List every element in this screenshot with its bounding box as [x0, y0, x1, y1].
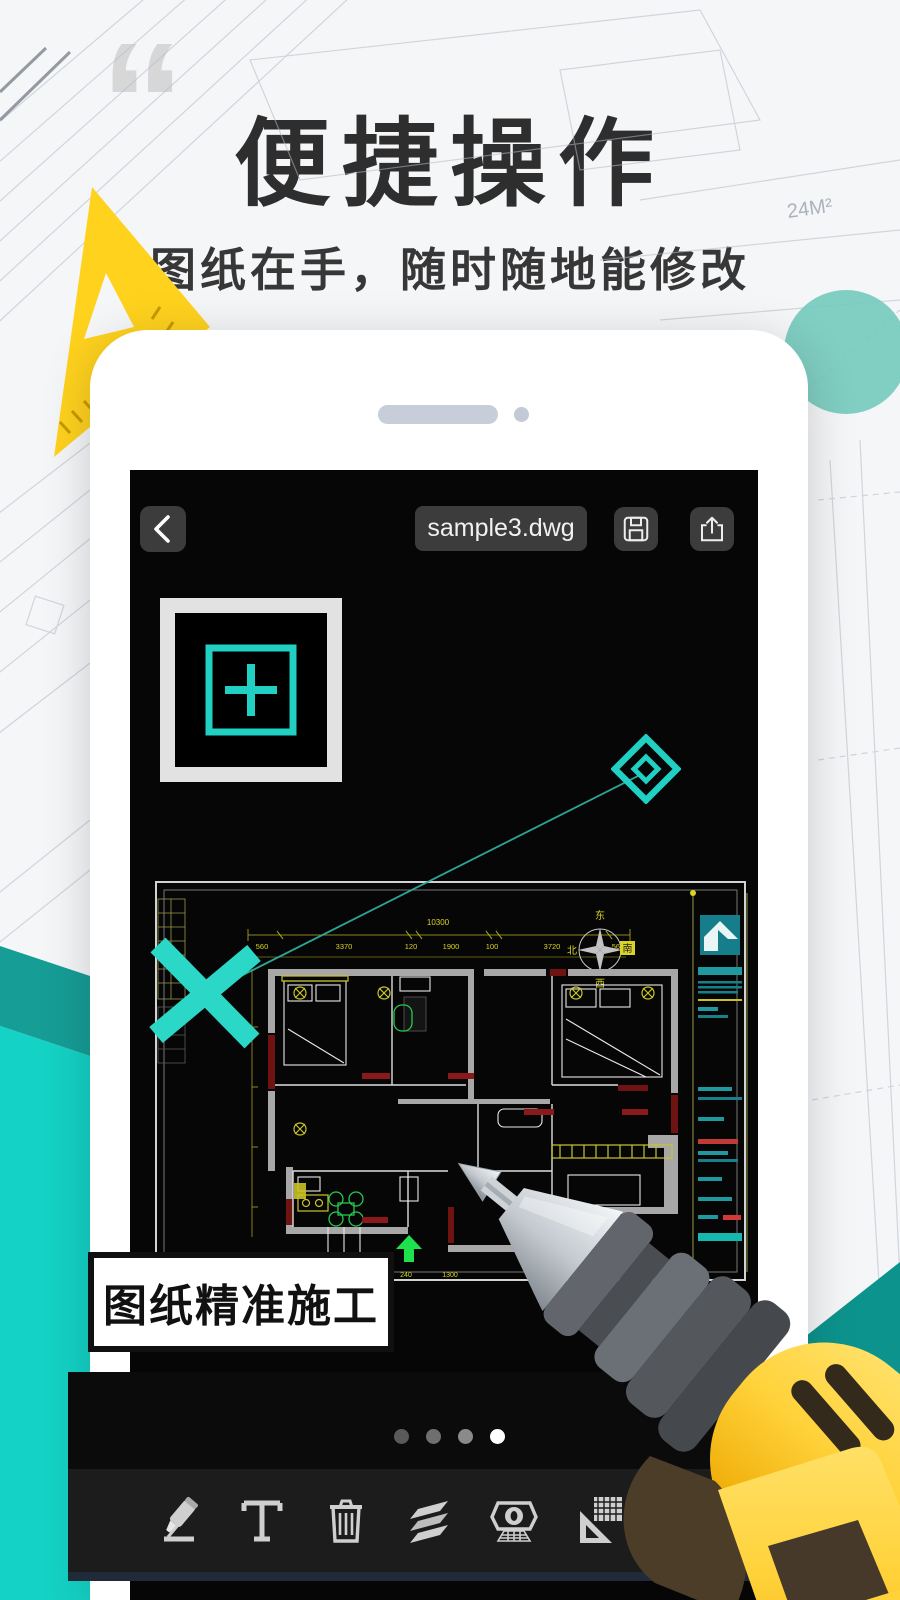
delete-tool[interactable] [320, 1495, 372, 1547]
svg-text:北: 北 [567, 945, 577, 957]
target-diamond-icon [611, 734, 681, 804]
add-entity-button[interactable] [160, 598, 342, 782]
trash-icon [320, 1495, 372, 1547]
cross-cursor-icon [140, 925, 270, 1055]
svg-text:120: 120 [405, 942, 418, 951]
plus-square-icon [203, 642, 299, 738]
svg-text:东: 东 [595, 909, 605, 922]
text-tool-icon [236, 1495, 288, 1547]
filename-chip: sample3.dwg [415, 506, 587, 551]
share-button[interactable] [690, 507, 734, 551]
compass-rose: 东 南 北 西 [567, 909, 635, 990]
promo-page: 24M² “ 便捷操作 图纸在手，随时随地能修改 [0, 0, 900, 1600]
svg-text:3370: 3370 [336, 942, 353, 951]
filename-label: sample3.dwg [427, 514, 574, 543]
phone-camera [514, 407, 529, 422]
save-button[interactable] [614, 507, 658, 551]
caption-banner-label: 图纸精准施工 [103, 1270, 379, 1334]
floppy-disk-icon [621, 514, 651, 544]
drill-image [400, 1096, 900, 1600]
share-icon [697, 514, 727, 544]
svg-text:100: 100 [486, 942, 499, 951]
marker-pen-icon [152, 1495, 204, 1547]
chevron-left-icon [140, 506, 186, 552]
svg-text:南: 南 [623, 942, 633, 955]
svg-text:3720: 3720 [544, 942, 561, 951]
svg-text:10300: 10300 [427, 918, 450, 927]
phone-speaker [378, 405, 498, 424]
back-button[interactable] [140, 506, 186, 552]
marker-pen-tool[interactable] [152, 1495, 204, 1547]
text-tool[interactable] [236, 1495, 288, 1547]
caption-banner: 图纸精准施工 [88, 1252, 394, 1352]
svg-text:1900: 1900 [443, 942, 460, 951]
